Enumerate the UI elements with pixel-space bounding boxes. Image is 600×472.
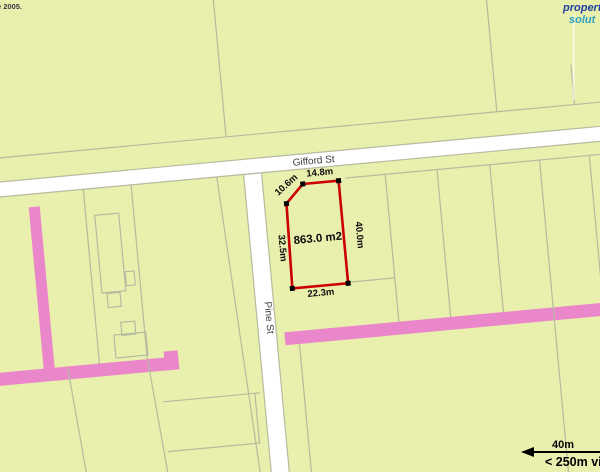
corner-marker xyxy=(336,178,341,183)
logo-streak xyxy=(573,14,576,100)
corner-marker xyxy=(284,201,289,206)
corner-marker xyxy=(290,286,295,291)
property-map-canvas[interactable]: Gifford St Pine St 14.8m 10.6m 40.0m 32.… xyxy=(0,0,600,472)
scale-distance-label: 40m xyxy=(552,439,574,451)
corner-marker xyxy=(345,281,350,286)
corner-marker xyxy=(300,181,305,186)
scale-range-label: < 250m vi xyxy=(545,455,600,469)
logo-text-line2: solut xyxy=(569,14,597,26)
pink-band-west-endcap xyxy=(164,350,180,370)
logo-text-line1: propert xyxy=(562,2,600,14)
copyright-text: e 2005. xyxy=(0,2,22,11)
